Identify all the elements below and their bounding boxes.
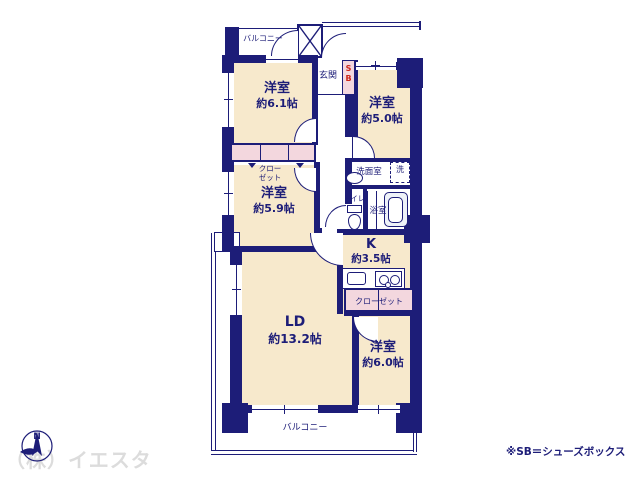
kitchen-label: K 約3.5帖 <box>341 237 401 266</box>
toilet-tank <box>347 205 362 213</box>
burner-icon <box>385 282 391 288</box>
wall-segment <box>226 246 320 252</box>
window-tick <box>224 95 233 104</box>
door-arc-entrance <box>321 33 346 58</box>
balcony-outline-bottom <box>211 450 417 455</box>
corridor-railing <box>322 22 420 27</box>
room-name: LD <box>240 314 350 332</box>
footnote: ※SB＝シューズボックス <box>506 444 625 459</box>
x-hatch-icon <box>299 26 321 56</box>
window-tick <box>371 61 380 70</box>
closet-lower-label: クローゼット <box>344 297 414 307</box>
bathtub-inner <box>388 197 403 223</box>
room-size: 約6.0帖 <box>357 356 409 370</box>
room-size: 約3.5帖 <box>341 253 401 266</box>
closet-upper-line2: ゼット <box>252 173 288 182</box>
floor-plan: SB バルコニー 洋室 約6.1帖 洋室 約5.0帖 洋室 約5.9帖 LD 約… <box>0 0 640 480</box>
burner-icon <box>390 275 400 285</box>
shoe-box: SB <box>342 60 355 95</box>
room-name: 洋室 <box>237 81 317 97</box>
window-tick <box>224 189 233 198</box>
bedroom-59-label: 洋室 約5.9帖 <box>234 186 314 216</box>
room-size: 約5.0帖 <box>356 112 408 126</box>
room-size: 約13.2帖 <box>240 332 350 347</box>
corridor-railing-end <box>419 21 421 30</box>
room-name: 洋室 <box>357 340 409 356</box>
room-name: K <box>341 237 401 253</box>
shaft-x-box <box>297 24 323 58</box>
room-size: 約6.1帖 <box>237 97 317 111</box>
balcony-bottom-label: バルコニー <box>270 423 340 434</box>
bedroom-60-label: 洋室 約6.0帖 <box>357 340 409 370</box>
door-arc-toilet <box>325 205 346 227</box>
window-tick <box>280 405 289 414</box>
wall-segment <box>345 185 412 189</box>
room-name: 洋室 <box>234 186 314 202</box>
kitchen-sink <box>347 272 366 285</box>
bedroom-50-label: 洋室 約5.0帖 <box>356 96 408 126</box>
stove <box>375 271 402 287</box>
entrance-label: 玄関 <box>313 71 343 82</box>
room-name: 洋室 <box>356 96 408 112</box>
closet-divider <box>288 145 289 160</box>
closet-upper-label: クロー ゼット <box>252 164 288 183</box>
balcony-top-label: バルコニー <box>227 34 299 44</box>
washer-label: 洗 <box>391 165 409 175</box>
closet-upper-line1: クロー <box>252 164 288 173</box>
closet-divider <box>260 145 261 160</box>
room-size: 約5.9帖 <box>234 202 314 216</box>
closet-fold-mark <box>296 163 304 168</box>
bedroom-61-label: 洋室 約6.1帖 <box>237 81 317 111</box>
balcony-outline-left <box>211 233 216 455</box>
bathroom-label: 浴室 <box>366 206 390 217</box>
compass-icon: N <box>16 422 58 468</box>
closet-upper <box>230 143 316 162</box>
kitchen-counter <box>342 268 405 289</box>
toilet-bowl <box>348 214 361 230</box>
balcony-outline-right <box>413 430 417 452</box>
window-tick <box>232 285 241 294</box>
living-dining-label: LD 約13.2帖 <box>240 314 350 347</box>
toilet-label: トイレ <box>342 194 366 203</box>
compass-north-letter: N <box>33 432 41 442</box>
wall-segment <box>345 95 352 137</box>
wall-segment <box>337 229 422 235</box>
balcony-door-opening <box>266 55 298 63</box>
wall-segment <box>222 403 248 433</box>
window-tick <box>374 405 383 414</box>
shoe-box-label: SB <box>344 64 353 84</box>
washroom-label: 洗面室 <box>350 167 388 178</box>
